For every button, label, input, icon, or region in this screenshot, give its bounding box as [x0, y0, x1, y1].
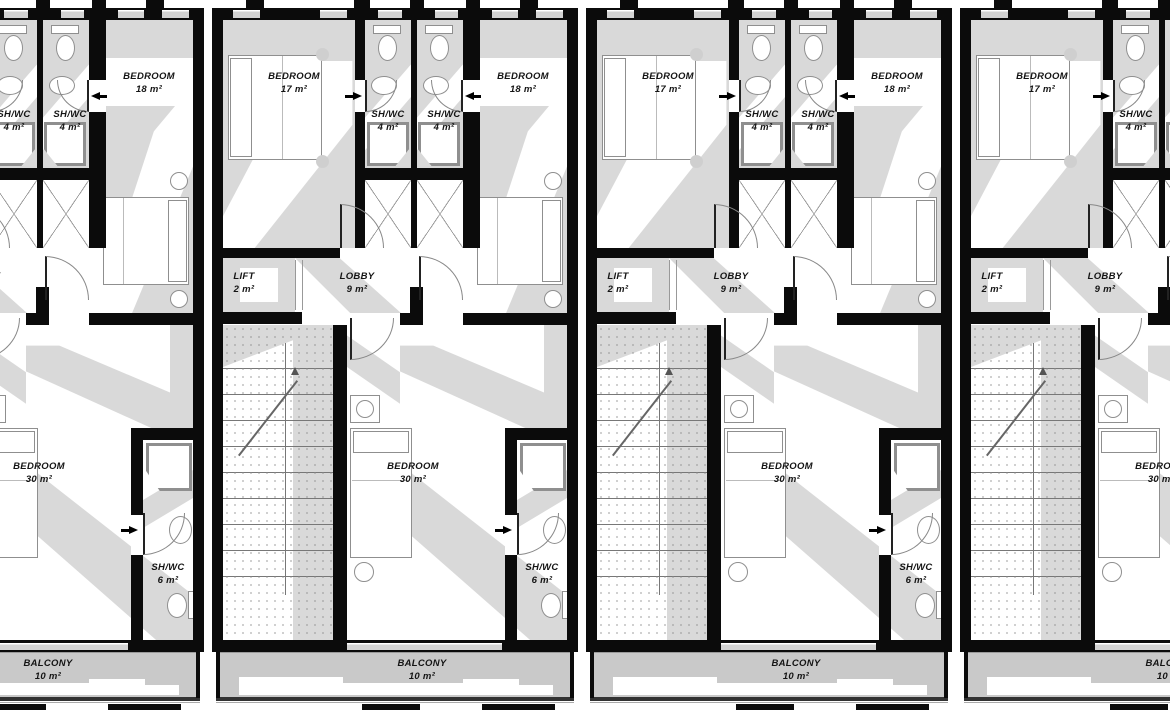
- window-symbol: [320, 10, 347, 18]
- bed-pillow: [0, 431, 35, 453]
- wall-tick: [520, 0, 538, 8]
- room-name: BEDROOM: [847, 70, 947, 83]
- lower-floor-line: [0, 702, 200, 703]
- door-arrow-icon: [869, 529, 877, 532]
- shadow-band: [918, 325, 941, 428]
- bed-line: [123, 198, 124, 284]
- lower-floor-line: [590, 702, 948, 703]
- door-swing: [419, 256, 463, 300]
- room-name: BEDROOM: [992, 70, 1092, 83]
- toilet-cistern: [51, 25, 79, 34]
- plant-decor: [316, 155, 329, 168]
- wall-tick: [994, 0, 1012, 8]
- wall-segment: [212, 248, 355, 258]
- toilet-symbol: [378, 35, 397, 61]
- balcony-door-symbol: [1095, 643, 1170, 650]
- door-arrow-icon: [121, 529, 129, 532]
- room-name: LOBBY: [1070, 270, 1140, 283]
- room-area: 10 m²: [347, 670, 497, 683]
- wall-segment: [505, 428, 517, 515]
- side-table: [544, 172, 562, 190]
- room-name: BEDROOM: [244, 70, 344, 83]
- room-area: 2 m²: [967, 283, 1017, 296]
- floor-plan-canvas: BEDROOM17 m² BEDROOM18 m² SH/WC4 m² SH/W…: [0, 0, 1170, 710]
- balcony-door-symbol: [0, 643, 128, 650]
- stool-symbol: [354, 562, 374, 582]
- lift-doors: [1043, 260, 1051, 310]
- window-symbol: [492, 10, 518, 18]
- lower-floor-wall: [1110, 704, 1168, 710]
- window-symbol: [4, 10, 28, 18]
- door-threshold: [340, 248, 355, 258]
- room-area: 4 m²: [418, 121, 470, 134]
- wall-segment: [400, 313, 423, 325]
- window-symbol: [536, 10, 563, 18]
- door-threshold: [1088, 248, 1103, 258]
- wall-segment: [837, 313, 941, 325]
- wall-segment: [785, 180, 791, 248]
- wall-segment: [1148, 313, 1170, 325]
- lower-floor-wall: [736, 704, 794, 710]
- plant-decor: [690, 155, 703, 168]
- wall-segment: [879, 428, 941, 440]
- room-name: BALCONY: [0, 657, 123, 670]
- toilet-cistern: [747, 25, 775, 34]
- door-threshold: [879, 515, 891, 555]
- label-shwc-a: SH/WC4 m²: [0, 108, 40, 134]
- room-area: 10 m²: [1095, 670, 1170, 683]
- wall-segment: [1159, 20, 1165, 168]
- wall-tick: [894, 0, 912, 8]
- balcony-light: [987, 677, 1091, 695]
- room-name: BALCONY: [721, 657, 871, 670]
- label-lobby: LOBBY9 m²: [0, 270, 18, 296]
- wall-tick: [36, 0, 50, 8]
- wall-segment: [879, 428, 891, 515]
- door-arrow-icon: [1093, 95, 1101, 98]
- toilet-symbol: [56, 35, 75, 61]
- label-shwc-6: SH/WC6 m²: [516, 561, 568, 587]
- room-area: 30 m²: [363, 473, 463, 486]
- room-name: LIFT: [593, 270, 643, 283]
- door-swing: [793, 256, 837, 300]
- lift-doors: [669, 260, 677, 310]
- label-lift: LIFT2 m²: [593, 270, 643, 296]
- toilet-cistern: [0, 25, 27, 34]
- stair-arrow-icon: [291, 367, 299, 375]
- shadow-band: [774, 325, 941, 428]
- toilet-cistern: [1121, 25, 1149, 34]
- wall-segment: [964, 652, 968, 698]
- room-name: LOBBY: [0, 270, 18, 283]
- label-shwc-a: SH/WC4 m²: [1110, 108, 1162, 134]
- wall-tick: [728, 0, 744, 8]
- label-bedroom-17: BEDROOM17 m²: [992, 70, 1092, 96]
- balcony-light: [1091, 683, 1170, 695]
- window-symbol: [435, 10, 458, 18]
- window-symbol: [866, 10, 892, 18]
- toilet-symbol: [541, 593, 561, 618]
- wall-segment: [586, 248, 729, 258]
- wall-segment: [131, 428, 143, 515]
- door-arrow-icon: [495, 529, 503, 532]
- wall-tick: [246, 0, 264, 8]
- label-bedroom-18: BEDROOM18 m²: [473, 70, 573, 96]
- room-area: 9 m²: [322, 283, 392, 296]
- label-lift: LIFT2 m²: [219, 270, 269, 296]
- wall-segment: [729, 20, 739, 80]
- wardrobe-symbol: [1165, 180, 1170, 248]
- bed-pillow: [168, 200, 187, 282]
- plant-decor: [690, 48, 703, 61]
- side-table: [170, 290, 188, 308]
- room-area: 9 m²: [1070, 283, 1140, 296]
- door-swing: [143, 513, 185, 555]
- room-name: LOBBY: [322, 270, 392, 283]
- room-area: 4 m²: [362, 121, 414, 134]
- wall-tick: [466, 0, 480, 8]
- side-table: [170, 172, 188, 190]
- wall-segment: [212, 312, 302, 324]
- label-balcony: BALCONY10 m²: [1095, 657, 1170, 683]
- room-area: 4 m²: [736, 121, 788, 134]
- room-name: BEDROOM: [363, 460, 463, 473]
- window-symbol: [118, 10, 144, 18]
- label-bedroom-18: BEDROOM18 m²: [99, 70, 199, 96]
- room-name: SH/WC: [1166, 108, 1170, 121]
- stool-symbol: [1102, 562, 1122, 582]
- window-symbol: [607, 10, 634, 18]
- wall-segment: [567, 8, 578, 652]
- window-symbol: [694, 10, 721, 18]
- wall-segment: [960, 248, 1103, 258]
- balcony-light: [519, 685, 553, 695]
- room-name: BALCONY: [1095, 657, 1170, 670]
- room-name: SH/WC: [792, 108, 844, 121]
- wall-tick: [1158, 0, 1170, 8]
- lower-floor-wall: [108, 704, 181, 710]
- shadow-band: [1148, 325, 1170, 428]
- unit-4: BEDROOM17 m² BEDROOM18 m² SH/WC4 m² SH/W…: [960, 0, 1170, 710]
- stair-arrow-icon: [665, 367, 673, 375]
- side-table: [918, 172, 936, 190]
- lamp-symbol: [1104, 400, 1122, 418]
- shadow-band: [26, 325, 193, 428]
- lamp-symbol: [356, 400, 374, 418]
- label-shwc-6: SH/WC6 m²: [142, 561, 194, 587]
- label-shwc-b: SH/WC4 m²: [44, 108, 96, 134]
- toilet-symbol: [1126, 35, 1145, 61]
- balcony-light: [893, 685, 927, 695]
- bed-pillow: [353, 431, 409, 453]
- balcony-rail: [216, 697, 574, 701]
- room-area: 30 m²: [1111, 473, 1170, 486]
- plant-decor: [316, 48, 329, 61]
- label-shwc-b: SH/WC4 m²: [418, 108, 470, 134]
- room-area: 4 m²: [1110, 121, 1162, 134]
- room-area: 18 m²: [473, 83, 573, 96]
- room-area: 6 m²: [516, 574, 568, 587]
- wall-segment: [355, 20, 365, 80]
- balcony-rail: [964, 697, 1170, 701]
- wall-segment: [590, 652, 594, 698]
- room-area: 17 m²: [244, 83, 344, 96]
- balcony-rail: [590, 697, 948, 701]
- balcony-light: [717, 683, 837, 695]
- unit-3: BEDROOM17 m² BEDROOM18 m² SH/WC4 m² SH/W…: [586, 0, 952, 710]
- window-symbol: [233, 10, 260, 18]
- wall-tick: [784, 0, 798, 8]
- label-bedroom-18: BEDROOM18 m²: [847, 70, 947, 96]
- wall-segment: [1103, 168, 1170, 180]
- label-shwc-6: SH/WC6 m²: [890, 561, 942, 587]
- wall-tick: [354, 0, 370, 8]
- wall-segment: [774, 313, 797, 325]
- room-name: LOBBY: [696, 270, 766, 283]
- shadow-band: [544, 325, 567, 428]
- plant-decor: [1064, 155, 1077, 168]
- door-arrow-icon: [129, 526, 138, 534]
- balcony-light: [343, 683, 463, 695]
- wall-segment: [944, 652, 948, 698]
- room-name: BALCONY: [347, 657, 497, 670]
- wall-segment: [26, 313, 49, 325]
- label-bedroom-30: BEDROOM30 m²: [363, 460, 463, 486]
- wall-segment: [586, 8, 597, 652]
- shower-symbol: [146, 443, 192, 491]
- plant-decor: [1064, 48, 1077, 61]
- room-area: 4 m²: [44, 121, 96, 134]
- toilet-symbol: [430, 35, 449, 61]
- room-name: LIFT: [967, 270, 1017, 283]
- room-name: SH/WC: [418, 108, 470, 121]
- lower-floor-line: [216, 702, 574, 703]
- door-arrow-icon: [345, 95, 353, 98]
- label-bedroom-17: BEDROOM17 m²: [244, 70, 344, 96]
- toilet-symbol: [915, 593, 935, 618]
- room-name: SH/WC: [736, 108, 788, 121]
- wall-tick: [1102, 0, 1118, 8]
- toilet-symbol: [752, 35, 771, 61]
- room-name: SH/WC: [516, 561, 568, 574]
- toilet-cistern: [425, 25, 453, 34]
- wall-segment: [212, 8, 223, 652]
- label-balcony: BALCONY10 m²: [721, 657, 871, 683]
- lower-floor-wall: [0, 704, 46, 710]
- window-symbol: [809, 10, 832, 18]
- room-area: 9 m²: [696, 283, 766, 296]
- side-table: [544, 290, 562, 308]
- label-lobby: LOBBY9 m²: [322, 270, 392, 296]
- stair-texture: [971, 325, 1081, 640]
- balcony-light: [0, 683, 89, 695]
- label-lift: LIFT2 m²: [967, 270, 1017, 296]
- window-symbol: [162, 10, 189, 18]
- label-shwc-a: SH/WC4 m²: [736, 108, 788, 134]
- wall-segment: [505, 428, 567, 440]
- label-bedroom-30: BEDROOM30 m²: [737, 460, 837, 486]
- shower-symbol: [520, 443, 566, 491]
- wall-segment: [216, 652, 220, 698]
- balcony-light: [239, 677, 343, 695]
- wall-segment: [570, 652, 574, 698]
- lower-floor-wall: [362, 704, 420, 710]
- wall-segment: [411, 20, 417, 168]
- door-swing: [724, 318, 768, 360]
- door-arrow-icon: [727, 92, 736, 100]
- door-swing: [1098, 318, 1142, 360]
- room-area: 18 m²: [847, 83, 947, 96]
- bed-pillow: [1101, 431, 1157, 453]
- room-name: BEDROOM: [99, 70, 199, 83]
- window-symbol: [752, 10, 776, 18]
- window-symbol: [1126, 10, 1150, 18]
- nightstand: [0, 395, 6, 423]
- wall-tick: [410, 0, 424, 8]
- room-name: SH/WC: [142, 561, 194, 574]
- label-balcony: BALCONY10 m²: [347, 657, 497, 683]
- toilet-symbol: [804, 35, 823, 61]
- wall-segment: [1081, 325, 1095, 640]
- shadow-band: [400, 325, 567, 428]
- staircase: [223, 325, 333, 640]
- lift-doors: [295, 260, 303, 310]
- room-area: 6 m²: [890, 574, 942, 587]
- wall-segment: [0, 168, 95, 180]
- wardrobe-symbol: [43, 180, 89, 248]
- toilet-symbol: [167, 593, 187, 618]
- wall-segment: [1159, 180, 1165, 248]
- wall-tick: [840, 0, 854, 8]
- room-area: 2 m²: [593, 283, 643, 296]
- label-shwc-b: SH/WC4 m²: [1166, 108, 1170, 134]
- room-name: BEDROOM: [473, 70, 573, 83]
- wall-segment: [37, 20, 43, 168]
- wall-segment: [89, 313, 193, 325]
- door-threshold: [714, 248, 729, 258]
- wardrobe-symbol: [791, 180, 837, 248]
- wall-segment: [355, 168, 469, 180]
- room-name: BEDROOM: [0, 460, 89, 473]
- room-name: SH/WC: [0, 108, 40, 121]
- room-name: BEDROOM: [737, 460, 837, 473]
- wall-segment: [131, 428, 193, 440]
- bed-pillow: [542, 200, 561, 282]
- room-area: 17 m²: [992, 83, 1092, 96]
- wall-segment: [196, 652, 200, 698]
- staircase: [971, 325, 1081, 640]
- wall-segment: [586, 312, 676, 324]
- label-lobby: LOBBY9 m²: [696, 270, 766, 296]
- wall-segment: [333, 325, 347, 640]
- side-table: [918, 290, 936, 308]
- door-swing: [0, 318, 20, 360]
- room-name: SH/WC: [890, 561, 942, 574]
- door-arrow-icon: [353, 92, 362, 100]
- window-symbol: [1068, 10, 1095, 18]
- stair-arrow-icon: [1039, 367, 1047, 375]
- toilet-symbol: [4, 35, 23, 61]
- room-name: SH/WC: [362, 108, 414, 121]
- stair-texture: [597, 325, 707, 640]
- bed-pillow: [916, 200, 935, 282]
- label-shwc-b: SH/WC4 m²: [792, 108, 844, 134]
- room-area: 10 m²: [0, 670, 123, 683]
- balcony-door-symbol: [347, 643, 502, 650]
- wall-segment: [707, 325, 721, 640]
- door-swing: [350, 318, 394, 360]
- window-symbol: [61, 10, 84, 18]
- wall-segment: [941, 8, 952, 652]
- stool-symbol: [728, 562, 748, 582]
- wardrobe-symbol: [417, 180, 463, 248]
- toilet-cistern: [373, 25, 401, 34]
- balcony-rail: [0, 697, 200, 701]
- wall-segment: [785, 20, 791, 168]
- door-arrow-icon: [877, 526, 886, 534]
- balcony-light: [145, 685, 179, 695]
- bed-line: [497, 198, 498, 284]
- room-area: 18 m²: [99, 83, 199, 96]
- staircase: [597, 325, 707, 640]
- door-threshold: [505, 515, 517, 555]
- shadow-band: [170, 325, 193, 428]
- window-symbol: [378, 10, 402, 18]
- balcony-light: [613, 677, 717, 695]
- room-name: LIFT: [219, 270, 269, 283]
- room-name: BEDROOM: [1111, 460, 1170, 473]
- room-area: 4 m²: [792, 121, 844, 134]
- unit-2: BEDROOM17 m² BEDROOM18 m² SH/WC4 m² SH/W…: [212, 0, 578, 710]
- lower-floor-wall: [482, 704, 555, 710]
- room-area: 6 m²: [142, 574, 194, 587]
- door-threshold: [131, 515, 143, 555]
- label-shwc-a: SH/WC4 m²: [362, 108, 414, 134]
- wall-segment: [960, 312, 1050, 324]
- room-name: BEDROOM: [618, 70, 718, 83]
- wall-tick: [146, 0, 164, 8]
- door-swing: [517, 513, 559, 555]
- lower-floor-line: [964, 702, 1170, 703]
- door-swing: [45, 256, 89, 300]
- room-area: 30 m²: [737, 473, 837, 486]
- room-area: 2 m²: [219, 283, 269, 296]
- room-area: 4 m²: [1166, 121, 1170, 134]
- room-area: 30 m²: [0, 473, 89, 486]
- toilet-cistern: [799, 25, 827, 34]
- label-lobby: LOBBY9 m²: [1070, 270, 1140, 296]
- label-balcony: BALCONY10 m²: [0, 657, 123, 683]
- label-bedroom-30: BEDROOM30 m²: [0, 460, 89, 486]
- window-symbol: [910, 10, 937, 18]
- wall-segment: [1103, 20, 1113, 80]
- wall-tick: [92, 0, 106, 8]
- door-arrow-icon: [503, 526, 512, 534]
- wall-tick: [620, 0, 638, 8]
- stair-texture: [223, 325, 333, 640]
- room-area: 4 m²: [0, 121, 40, 134]
- door-arrow-icon: [1101, 92, 1110, 100]
- door-arrow-icon: [719, 95, 727, 98]
- room-area: 10 m²: [721, 670, 871, 683]
- wall-segment: [463, 313, 567, 325]
- bed-pillow: [727, 431, 783, 453]
- label-bedroom-30: BEDROOM30 m²: [1111, 460, 1170, 486]
- room-area: 17 m²: [618, 83, 718, 96]
- lamp-symbol: [730, 400, 748, 418]
- room-name: SH/WC: [44, 108, 96, 121]
- label-bedroom-17: BEDROOM17 m²: [618, 70, 718, 96]
